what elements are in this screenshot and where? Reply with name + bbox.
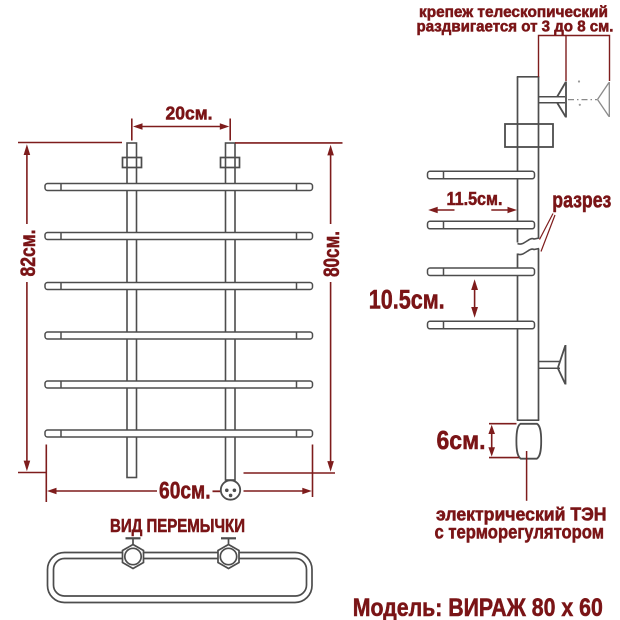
svg-text:разрез: разрез <box>552 188 611 213</box>
svg-text:Модель: ВИРАЖ 80 х 60: Модель: ВИРАЖ 80 х 60 <box>353 594 603 620</box>
svg-text:11.5см.: 11.5см. <box>447 189 503 209</box>
svg-text:20см.: 20см. <box>166 104 213 124</box>
svg-text:с терморегулятором: с терморегулятором <box>435 522 605 544</box>
svg-text:60см.: 60см. <box>159 477 211 504</box>
svg-text:ВИД ПЕРЕМЫЧКИ: ВИД ПЕРЕМЫЧКИ <box>110 516 245 536</box>
svg-text:раздвигается от 3 до 8 см.: раздвигается от 3 до 8 см. <box>417 18 614 35</box>
svg-text:82см.: 82см. <box>16 230 40 277</box>
svg-text:6см.: 6см. <box>437 425 486 455</box>
svg-text:10.5см.: 10.5см. <box>369 285 445 315</box>
svg-text:80см.: 80см. <box>319 231 344 277</box>
